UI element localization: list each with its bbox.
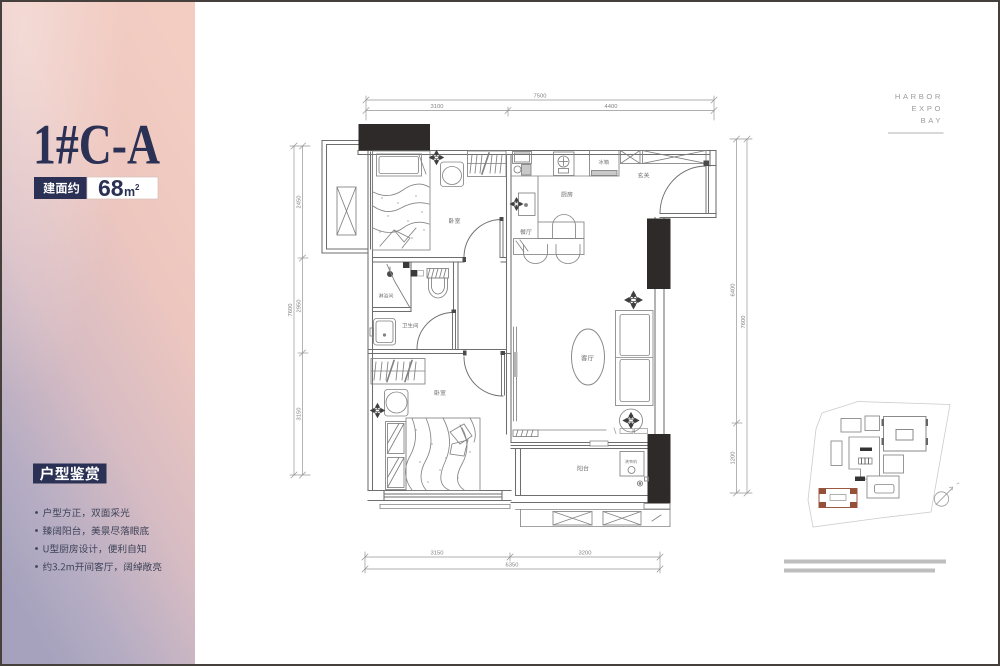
svg-text:7600: 7600 xyxy=(741,316,747,329)
svg-text:7600: 7600 xyxy=(288,304,294,317)
svg-text:7500: 7500 xyxy=(534,94,547,100)
svg-text:HARBOR: HARBOR xyxy=(895,92,943,101)
svg-text:2: 2 xyxy=(135,183,140,192)
svg-text:6400: 6400 xyxy=(731,284,737,297)
svg-text:3150: 3150 xyxy=(297,408,303,421)
svg-text:1#C-A: 1#C-A xyxy=(33,114,160,177)
svg-text:3150: 3150 xyxy=(431,551,444,557)
svg-text:BAY: BAY xyxy=(921,116,943,125)
svg-text:2950: 2950 xyxy=(297,300,303,313)
svg-text:3100: 3100 xyxy=(431,104,444,110)
svg-text:6350: 6350 xyxy=(506,563,519,569)
svg-text:EXPO: EXPO xyxy=(911,104,943,113)
svg-text:m: m xyxy=(124,185,135,199)
svg-text:1200: 1200 xyxy=(731,452,737,465)
svg-text:2450: 2450 xyxy=(297,196,303,209)
svg-text:4400: 4400 xyxy=(605,104,618,110)
svg-text:68: 68 xyxy=(98,175,124,201)
svg-text:3200: 3200 xyxy=(579,551,592,557)
